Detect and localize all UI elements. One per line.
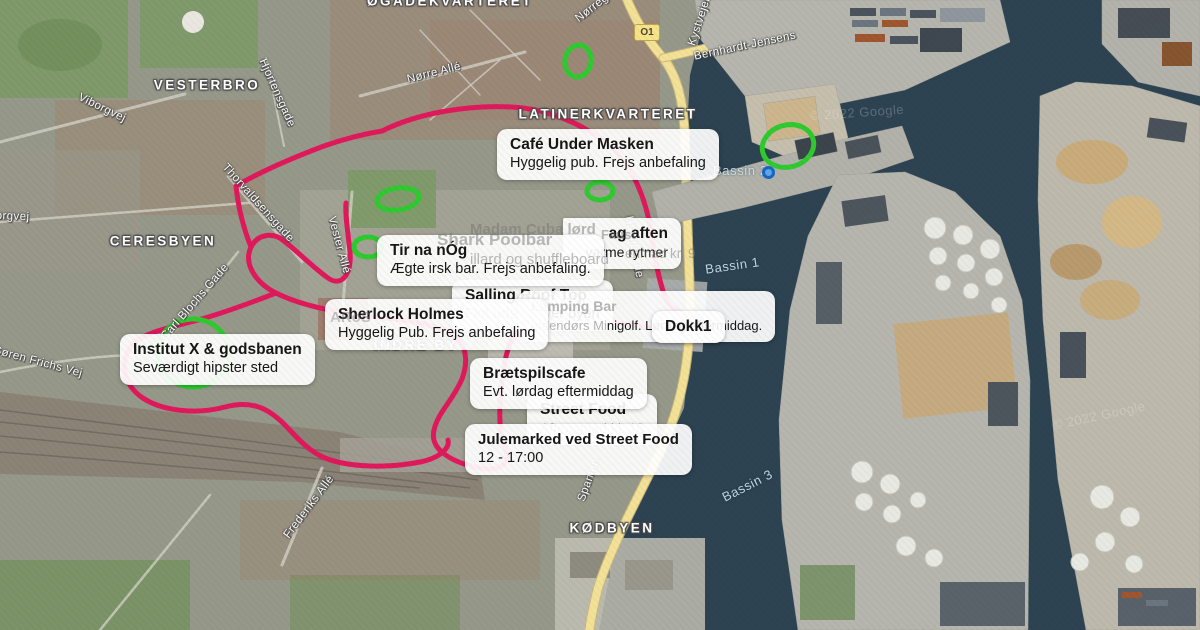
callout-sherlock-holmes[interactable]: Sherlock Holmes Hyggelig Pub. Frejs anbe… xyxy=(325,299,548,350)
bassin2-marker[interactable] xyxy=(762,166,775,179)
o1-route-badge: O1 xyxy=(634,24,660,41)
callout-subtitle: Indendørs Minigolf. Lørdag eftermiddag. xyxy=(531,316,762,335)
callout-title: Brætspilscafe xyxy=(483,364,634,383)
callout-institut-x[interactable]: Institut X & godsbanen Seværdigt hipster… xyxy=(120,334,315,385)
callout-cafe-under-masken[interactable]: Café Under Masken Hyggelig pub. Frejs an… xyxy=(497,129,719,180)
callout-tir-na-nog[interactable]: Tir na nÓg Ægte irsk bar. Frejs anbefali… xyxy=(377,235,604,286)
callout-title: Institut X & godsbanen xyxy=(133,340,302,359)
callout-braetspilscafe[interactable]: Brætspilscafe Evt. lørdag eftermiddag xyxy=(470,358,647,409)
callout-subtitle: Hyggelig Pub. Frejs anbefaling xyxy=(338,324,535,343)
callout-subtitle: Evt. lørdag eftermiddag xyxy=(483,383,634,402)
callout-dokk1[interactable]: Dokk1 xyxy=(652,311,725,343)
callout-minigolf-fragment[interactable]: Lamping Bar Indendørs Minigolf. Lørdag e… xyxy=(518,291,775,342)
callout-title: Sherlock Holmes xyxy=(338,305,535,324)
callout-subtitle: 12 - 17:00 xyxy=(478,449,679,468)
callout-title: Café Under Masken xyxy=(510,135,706,154)
callout-subtitle: Ægte irsk bar. Frejs anbefaling. xyxy=(390,260,591,279)
callout-title: Lamping Bar xyxy=(531,297,762,316)
callout-julemarked[interactable]: Julemarked ved Street Food 12 - 17:00 xyxy=(465,424,692,475)
callout-subtitle: Hyggelig pub. Frejs anbefaling xyxy=(510,154,706,173)
callout-subtitle: Seværdigt hipster sted xyxy=(133,359,302,378)
callout-title: Tir na nÓg xyxy=(390,241,591,260)
callout-title: Julemarked ved Street Food xyxy=(478,430,679,449)
callout-title: Dokk1 xyxy=(665,317,712,336)
satellite-map[interactable]: ØGADEKVARTERET VESTERBRO LATINERKVARTERE… xyxy=(0,0,1200,630)
